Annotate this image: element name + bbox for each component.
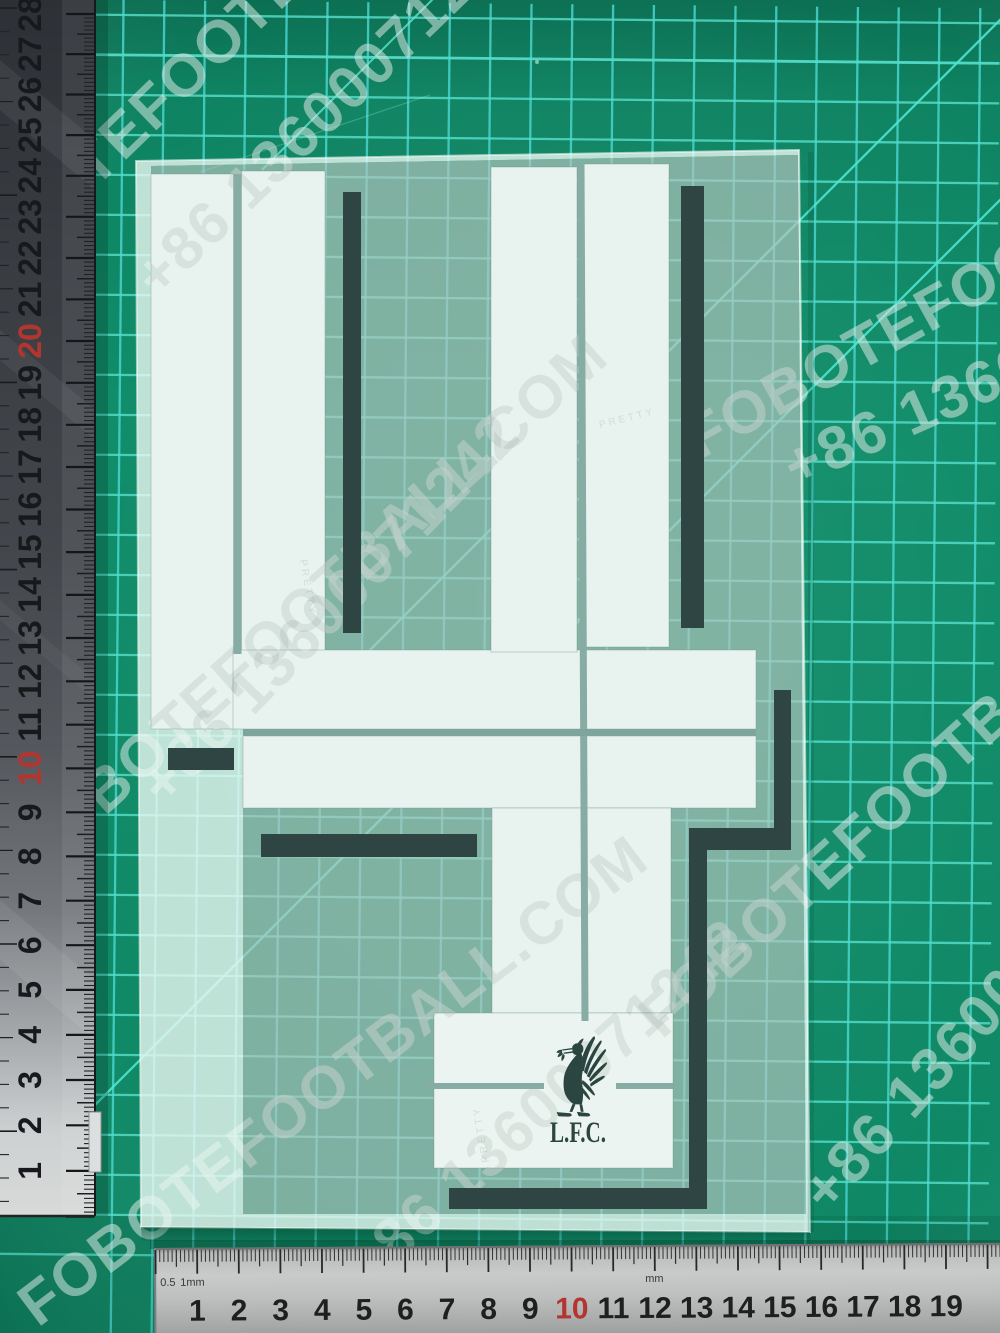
svg-text:1: 1 (12, 1162, 48, 1180)
svg-text:10: 10 (555, 1292, 589, 1325)
svg-text:3: 3 (12, 1071, 48, 1089)
svg-text:2: 2 (231, 1294, 248, 1327)
svg-text:2: 2 (12, 1116, 48, 1134)
svg-text:18: 18 (12, 407, 48, 443)
svg-text:5: 5 (12, 981, 48, 999)
svg-text:7: 7 (439, 1293, 456, 1326)
svg-text:8: 8 (480, 1293, 497, 1326)
svg-text:28: 28 (12, 0, 48, 32)
svg-text:13: 13 (680, 1292, 714, 1325)
svg-text:16: 16 (805, 1291, 839, 1324)
svg-text:25: 25 (12, 117, 48, 153)
svg-text:3: 3 (272, 1294, 289, 1327)
svg-text:6: 6 (397, 1293, 414, 1326)
svg-text:12: 12 (638, 1292, 672, 1325)
svg-text:15: 15 (12, 534, 48, 570)
svg-text:20: 20 (12, 323, 48, 359)
svg-text:9: 9 (12, 803, 48, 821)
svg-text:21: 21 (12, 282, 48, 318)
svg-text:0.5: 0.5 (160, 1277, 175, 1289)
svg-text:1mm: 1mm (180, 1277, 205, 1289)
svg-text:19: 19 (12, 365, 48, 401)
svg-text:22: 22 (12, 240, 48, 276)
svg-text:27: 27 (12, 36, 48, 72)
svg-text:14: 14 (721, 1291, 755, 1324)
svg-text:24: 24 (12, 158, 48, 194)
svg-text:10: 10 (12, 751, 48, 787)
svg-text:23: 23 (12, 199, 48, 235)
svg-text:13: 13 (12, 620, 48, 656)
svg-text:4: 4 (314, 1294, 331, 1327)
svg-text:17: 17 (846, 1291, 880, 1324)
svg-text:12: 12 (12, 664, 48, 700)
svg-text:18: 18 (888, 1290, 922, 1323)
svg-text:16: 16 (12, 492, 48, 528)
svg-text:17: 17 (12, 449, 48, 485)
svg-text:11: 11 (598, 1292, 630, 1325)
svg-text:14: 14 (12, 577, 48, 613)
svg-text:26: 26 (12, 77, 48, 113)
svg-text:mm: mm (645, 1273, 663, 1285)
svg-text:L.F.C.: L.F.C. (550, 1116, 606, 1149)
svg-text:15: 15 (763, 1291, 797, 1324)
svg-text:4: 4 (12, 1026, 48, 1044)
svg-text:5: 5 (355, 1294, 372, 1327)
svg-text:7: 7 (12, 892, 48, 910)
svg-text:19: 19 (929, 1290, 963, 1323)
svg-text:6: 6 (12, 936, 48, 954)
svg-text:1: 1 (189, 1295, 206, 1328)
svg-text:11: 11 (12, 708, 48, 742)
svg-text:9: 9 (522, 1293, 539, 1326)
svg-text:8: 8 (12, 848, 48, 866)
